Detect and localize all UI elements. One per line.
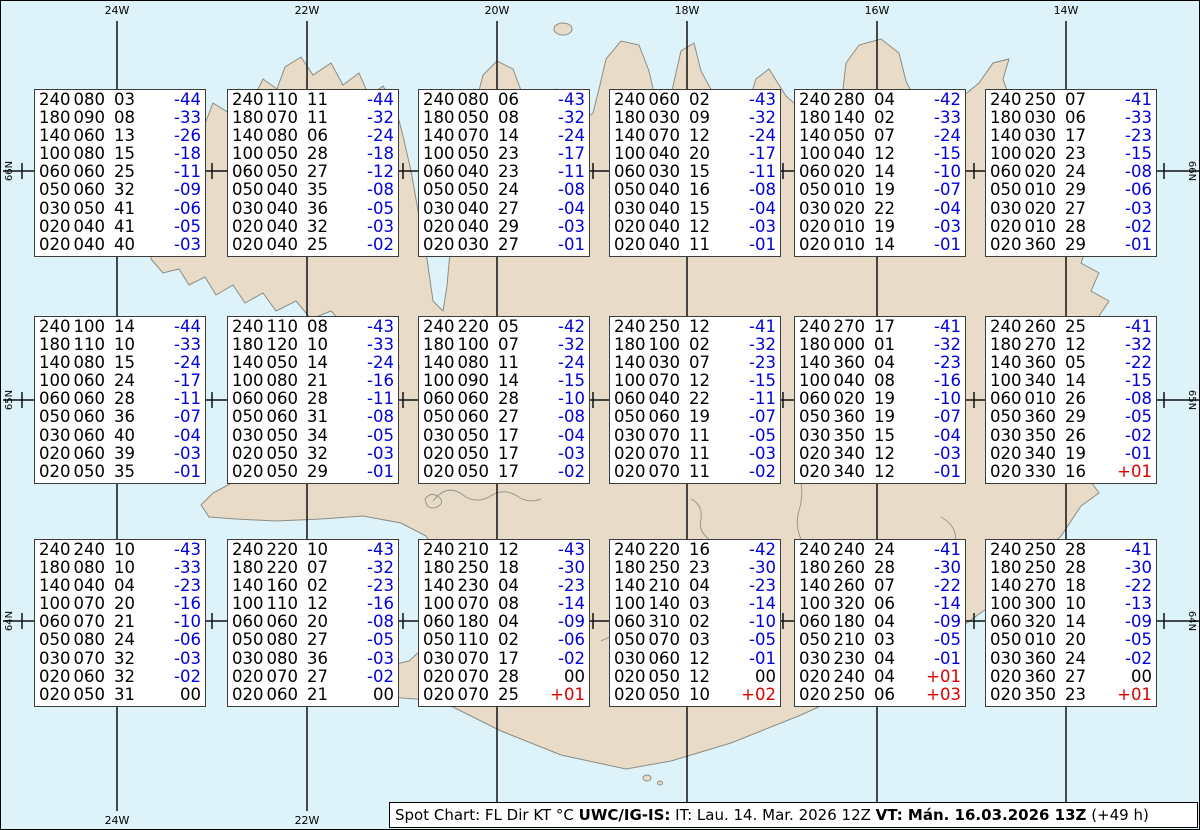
station-level-row: 18009008-33 bbox=[39, 109, 201, 127]
wind-direction: 110 bbox=[74, 336, 106, 354]
wind-speed-kt: 17 bbox=[498, 463, 520, 481]
wind-speed-kt: 25 bbox=[307, 236, 329, 254]
flight-level: 180 bbox=[423, 109, 455, 127]
flight-level: 140 bbox=[232, 577, 264, 595]
station-level-row: 05006036-07 bbox=[39, 408, 201, 426]
temperature-c: 00 bbox=[549, 668, 585, 686]
flight-level: 140 bbox=[799, 354, 831, 372]
flight-level: 060 bbox=[39, 613, 71, 631]
flight-level: 100 bbox=[232, 595, 264, 613]
flight-level: 100 bbox=[614, 595, 646, 613]
wind-speed-kt: 28 bbox=[1065, 218, 1087, 236]
temperature-c: -05 bbox=[165, 218, 201, 236]
flight-level: 140 bbox=[232, 354, 264, 372]
flight-level: 060 bbox=[990, 390, 1022, 408]
wind-direction: 350 bbox=[1025, 686, 1057, 704]
flight-level: 020 bbox=[232, 236, 264, 254]
wind-direction: 220 bbox=[458, 318, 490, 336]
flight-level: 180 bbox=[423, 336, 455, 354]
wind-speed-kt: 04 bbox=[874, 650, 896, 668]
wind-speed-kt: 16 bbox=[689, 181, 711, 199]
flight-level: 060 bbox=[423, 613, 455, 631]
temperature-c: -08 bbox=[358, 408, 394, 426]
station-level-row: 24028004-42 bbox=[799, 91, 961, 109]
wind-speed-kt: 08 bbox=[307, 318, 329, 336]
wind-direction: 100 bbox=[649, 336, 681, 354]
temperature-c: -08 bbox=[358, 613, 394, 631]
station-level-row: 02001014-01 bbox=[799, 236, 961, 254]
temperature-c: -02 bbox=[1116, 218, 1152, 236]
wind-direction: 010 bbox=[1025, 181, 1057, 199]
station-level-row: 02005017-03 bbox=[423, 445, 585, 463]
temperature-c: -09 bbox=[165, 181, 201, 199]
wind-speed-kt: 27 bbox=[1065, 200, 1087, 218]
temperature-c: -05 bbox=[740, 631, 776, 649]
wind-speed-kt: 10 bbox=[114, 336, 136, 354]
temperature-c: -04 bbox=[925, 427, 961, 445]
station-level-row: 24011008-43 bbox=[232, 318, 394, 336]
wind-speed-kt: 29 bbox=[1065, 236, 1087, 254]
temperature-c: -22 bbox=[1116, 577, 1152, 595]
station-level-row: 10005028-18 bbox=[232, 145, 394, 163]
wind-speed-kt: 27 bbox=[307, 163, 329, 181]
wind-direction: 070 bbox=[649, 372, 681, 390]
wind-direction: 050 bbox=[267, 354, 299, 372]
flight-level: 060 bbox=[799, 613, 831, 631]
station-level-row: 24022005-42 bbox=[423, 318, 585, 336]
temperature-c: -42 bbox=[549, 318, 585, 336]
temperature-c: -09 bbox=[925, 613, 961, 631]
flight-level: 050 bbox=[799, 181, 831, 199]
footer-info-bar: Spot Chart: FL Dir KT °C UWC/IG-IS: IT: … bbox=[389, 802, 1198, 828]
temperature-c: -03 bbox=[1116, 200, 1152, 218]
temperature-c: 00 bbox=[358, 686, 394, 704]
station-level-row: 14005014-24 bbox=[232, 354, 394, 372]
wind-speed-kt: 06 bbox=[498, 91, 520, 109]
temperature-c: -03 bbox=[165, 445, 201, 463]
wind-direction: 350 bbox=[1025, 427, 1057, 445]
wind-direction: 010 bbox=[834, 236, 866, 254]
flight-level: 240 bbox=[614, 91, 646, 109]
wind-speed-kt: 03 bbox=[689, 595, 711, 613]
flight-level: 020 bbox=[614, 445, 646, 463]
station-level-row: 0203602700 bbox=[990, 668, 1152, 686]
wind-direction: 050 bbox=[267, 427, 299, 445]
temperature-c: -30 bbox=[740, 559, 776, 577]
station-box-12: 24026025-4118027012-3214036005-221003401… bbox=[985, 316, 1157, 484]
station-level-row: 24011011-44 bbox=[232, 91, 394, 109]
wind-speed-kt: 28 bbox=[307, 390, 329, 408]
temperature-c: 00 bbox=[1116, 668, 1152, 686]
wind-speed-kt: 08 bbox=[498, 595, 520, 613]
station-level-row: 06006028-11 bbox=[232, 390, 394, 408]
temperature-c: -01 bbox=[740, 236, 776, 254]
temperature-c: -15 bbox=[549, 372, 585, 390]
wind-speed-kt: 24 bbox=[1065, 163, 1087, 181]
station-level-row: 24022010-43 bbox=[232, 541, 394, 559]
station-level-row: 10007020-16 bbox=[39, 595, 201, 613]
station-level-row: 02024004+01 bbox=[799, 668, 961, 686]
wind-speed-kt: 05 bbox=[1065, 354, 1087, 372]
flight-level: 020 bbox=[614, 463, 646, 481]
wind-direction: 010 bbox=[834, 218, 866, 236]
flight-level: 180 bbox=[799, 109, 831, 127]
temperature-c: 00 bbox=[740, 668, 776, 686]
longitude-label-top: 18W bbox=[675, 5, 700, 17]
station-level-row: 02004041-05 bbox=[39, 218, 201, 236]
flight-level: 020 bbox=[39, 686, 71, 704]
wind-direction: 030 bbox=[649, 163, 681, 181]
station-level-row: 18005008-32 bbox=[423, 109, 585, 127]
station-level-row: 05006032-09 bbox=[39, 181, 201, 199]
flight-level: 020 bbox=[990, 218, 1022, 236]
station-level-row: 03007011-05 bbox=[614, 427, 776, 445]
wind-speed-kt: 27 bbox=[307, 631, 329, 649]
wind-direction: 060 bbox=[458, 408, 490, 426]
flight-level: 140 bbox=[423, 127, 455, 145]
wind-speed-kt: 12 bbox=[689, 668, 711, 686]
wind-direction: 060 bbox=[74, 390, 106, 408]
temperature-c: -05 bbox=[358, 427, 394, 445]
station-level-row: 24025012-41 bbox=[614, 318, 776, 336]
wind-direction: 250 bbox=[649, 318, 681, 336]
station-level-row: 03006040-04 bbox=[39, 427, 201, 445]
flight-level: 140 bbox=[423, 354, 455, 372]
wind-direction: 070 bbox=[267, 668, 299, 686]
temperature-c: +01 bbox=[549, 686, 585, 704]
station-level-row: 06002024-08 bbox=[990, 163, 1152, 181]
wind-direction: 030 bbox=[649, 354, 681, 372]
wind-speed-kt: 12 bbox=[1065, 336, 1087, 354]
temperature-c: -24 bbox=[740, 127, 776, 145]
wind-direction: 080 bbox=[74, 91, 106, 109]
wind-speed-kt: 07 bbox=[874, 127, 896, 145]
flight-level: 240 bbox=[232, 541, 264, 559]
wind-speed-kt: 07 bbox=[307, 559, 329, 577]
station-box-5: 24028004-4218014002-3314005007-241000401… bbox=[794, 89, 966, 257]
flight-level: 140 bbox=[39, 577, 71, 595]
station-level-row: 03035015-04 bbox=[799, 427, 961, 445]
footer-segment-bold: UWC/IG-IS: bbox=[579, 806, 671, 824]
flight-level: 140 bbox=[39, 354, 71, 372]
temperature-c: -33 bbox=[925, 109, 961, 127]
station-box-8: 24011008-4318012010-3314005014-241000802… bbox=[227, 316, 399, 484]
wind-direction: 250 bbox=[649, 559, 681, 577]
flight-level: 140 bbox=[799, 127, 831, 145]
wind-direction: 070 bbox=[649, 463, 681, 481]
station-level-row: 05006031-08 bbox=[232, 408, 394, 426]
wind-speed-kt: 41 bbox=[114, 200, 136, 218]
wind-speed-kt: 32 bbox=[307, 218, 329, 236]
wind-speed-kt: 20 bbox=[689, 145, 711, 163]
wind-direction: 080 bbox=[74, 145, 106, 163]
temperature-c: -43 bbox=[549, 541, 585, 559]
wind-direction: 140 bbox=[649, 595, 681, 613]
station-level-row: 03023004-01 bbox=[799, 650, 961, 668]
temperature-c: -02 bbox=[1116, 427, 1152, 445]
temperature-c: -22 bbox=[1116, 354, 1152, 372]
wind-speed-kt: 14 bbox=[874, 163, 896, 181]
wind-speed-kt: 08 bbox=[498, 109, 520, 127]
wind-direction: 030 bbox=[1025, 109, 1057, 127]
wind-direction: 070 bbox=[649, 631, 681, 649]
station-level-row: 06007021-10 bbox=[39, 613, 201, 631]
wind-direction: 020 bbox=[1025, 163, 1057, 181]
temperature-c: -11 bbox=[358, 390, 394, 408]
wind-direction: 050 bbox=[74, 463, 106, 481]
wind-speed-kt: 04 bbox=[874, 668, 896, 686]
temperature-c: -41 bbox=[925, 318, 961, 336]
temperature-c: -01 bbox=[1116, 236, 1152, 254]
wind-speed-kt: 23 bbox=[689, 559, 711, 577]
temperature-c: -03 bbox=[358, 218, 394, 236]
temperature-c: -22 bbox=[925, 577, 961, 595]
station-level-row: 05005024-08 bbox=[423, 181, 585, 199]
station-level-row: 02006032-02 bbox=[39, 668, 201, 686]
temperature-c: -44 bbox=[165, 318, 201, 336]
temperature-c: -08 bbox=[549, 181, 585, 199]
wind-speed-kt: 16 bbox=[1065, 463, 1087, 481]
flight-level: 030 bbox=[990, 650, 1022, 668]
wind-speed-kt: 12 bbox=[874, 463, 896, 481]
station-level-row: 06002019-10 bbox=[799, 390, 961, 408]
temperature-c: -32 bbox=[740, 336, 776, 354]
temperature-c: -41 bbox=[925, 541, 961, 559]
flight-level: 240 bbox=[39, 91, 71, 109]
station-level-row: 10011012-16 bbox=[232, 595, 394, 613]
wind-direction: 010 bbox=[1025, 390, 1057, 408]
longitude-label-bottom: 24W bbox=[105, 815, 130, 827]
wind-speed-kt: 03 bbox=[874, 631, 896, 649]
temperature-c: -03 bbox=[925, 445, 961, 463]
temperature-c: -12 bbox=[358, 163, 394, 181]
wind-speed-kt: 04 bbox=[114, 577, 136, 595]
station-level-row: 06002014-10 bbox=[799, 163, 961, 181]
footer-segment: Spot Chart: FL Dir KT °C bbox=[395, 806, 579, 824]
temperature-c: -15 bbox=[925, 145, 961, 163]
flight-level: 180 bbox=[990, 559, 1022, 577]
wind-speed-kt: 17 bbox=[498, 445, 520, 463]
temperature-c: -30 bbox=[549, 559, 585, 577]
flight-level: 240 bbox=[39, 541, 71, 559]
wind-direction: 050 bbox=[458, 427, 490, 445]
flight-level: 060 bbox=[990, 613, 1022, 631]
wind-direction: 040 bbox=[74, 218, 106, 236]
temperature-c: -18 bbox=[358, 145, 394, 163]
flight-level: 240 bbox=[614, 318, 646, 336]
temperature-c: -01 bbox=[549, 236, 585, 254]
station-level-row: 02007011-02 bbox=[614, 463, 776, 481]
wind-speed-kt: 26 bbox=[1065, 390, 1087, 408]
station-level-row: 06018004-09 bbox=[799, 613, 961, 631]
temperature-c: -23 bbox=[358, 577, 394, 595]
station-level-row: 10008021-16 bbox=[232, 372, 394, 390]
wind-speed-kt: 39 bbox=[114, 445, 136, 463]
flight-level: 020 bbox=[423, 218, 455, 236]
temperature-c: -04 bbox=[549, 427, 585, 445]
wind-direction: 080 bbox=[74, 354, 106, 372]
station-box-7: 24010014-4418011010-3314008015-241000602… bbox=[34, 316, 206, 484]
flight-level: 100 bbox=[423, 372, 455, 390]
flight-level: 180 bbox=[39, 109, 71, 127]
station-level-row: 18012010-33 bbox=[232, 336, 394, 354]
latitude-label-left: 66N bbox=[5, 161, 15, 181]
wind-speed-kt: 23 bbox=[1065, 686, 1087, 704]
wind-direction: 040 bbox=[458, 218, 490, 236]
flight-level: 020 bbox=[423, 463, 455, 481]
flight-level: 100 bbox=[614, 145, 646, 163]
flight-level: 030 bbox=[614, 650, 646, 668]
flight-level: 060 bbox=[39, 163, 71, 181]
station-level-row: 03005017-04 bbox=[423, 427, 585, 445]
temperature-c: -02 bbox=[1116, 650, 1152, 668]
wind-speed-kt: 27 bbox=[307, 668, 329, 686]
wind-speed-kt: 12 bbox=[689, 218, 711, 236]
wind-speed-kt: 04 bbox=[498, 577, 520, 595]
temperature-c: -16 bbox=[165, 595, 201, 613]
flight-level: 030 bbox=[990, 427, 1022, 445]
flight-level: 050 bbox=[614, 408, 646, 426]
wind-direction: 140 bbox=[834, 109, 866, 127]
wind-speed-kt: 15 bbox=[689, 163, 711, 181]
wind-speed-kt: 19 bbox=[874, 181, 896, 199]
wind-speed-kt: 22 bbox=[874, 200, 896, 218]
flight-level: 050 bbox=[423, 181, 455, 199]
wind-direction: 110 bbox=[458, 631, 490, 649]
flight-level: 240 bbox=[232, 91, 264, 109]
flight-level: 240 bbox=[990, 541, 1022, 559]
flight-level: 020 bbox=[39, 218, 71, 236]
station-level-row: 14007012-24 bbox=[614, 127, 776, 145]
flight-level: 020 bbox=[232, 463, 264, 481]
flight-level: 140 bbox=[614, 127, 646, 145]
wind-direction: 080 bbox=[74, 559, 106, 577]
wind-direction: 220 bbox=[649, 541, 681, 559]
station-level-row: 03008036-03 bbox=[232, 650, 394, 668]
wind-direction: 050 bbox=[649, 686, 681, 704]
wind-direction: 330 bbox=[1025, 463, 1057, 481]
wind-direction: 020 bbox=[834, 163, 866, 181]
station-level-row: 06005027-12 bbox=[232, 163, 394, 181]
station-level-row: 14004004-23 bbox=[39, 577, 201, 595]
flight-level: 030 bbox=[423, 650, 455, 668]
temperature-c: -10 bbox=[549, 390, 585, 408]
wind-speed-kt: 25 bbox=[498, 686, 520, 704]
temperature-c: -11 bbox=[549, 163, 585, 181]
temperature-c: -42 bbox=[925, 91, 961, 109]
wind-direction: 000 bbox=[834, 336, 866, 354]
station-level-row: 18014002-33 bbox=[799, 109, 961, 127]
flight-level: 180 bbox=[614, 336, 646, 354]
wind-direction: 360 bbox=[1025, 408, 1057, 426]
wind-direction: 090 bbox=[458, 372, 490, 390]
temperature-c: -11 bbox=[165, 163, 201, 181]
wind-speed-kt: 32 bbox=[114, 650, 136, 668]
wind-direction: 090 bbox=[74, 109, 106, 127]
longitude-label-top: 20W bbox=[485, 5, 510, 17]
wind-direction: 210 bbox=[834, 631, 866, 649]
flight-level: 020 bbox=[614, 218, 646, 236]
station-level-row: 06004023-11 bbox=[423, 163, 585, 181]
temperature-c: -24 bbox=[358, 127, 394, 145]
station-level-row: 18011010-33 bbox=[39, 336, 201, 354]
wind-direction: 240 bbox=[74, 541, 106, 559]
wind-speed-kt: 31 bbox=[307, 408, 329, 426]
station-level-row: 24027017-41 bbox=[799, 318, 961, 336]
footer-segment-bold: VT: Mán. 16.03.2026 13Z bbox=[876, 806, 1087, 824]
flight-level: 140 bbox=[232, 127, 264, 145]
station-level-row: 14021004-23 bbox=[614, 577, 776, 595]
temperature-c: -24 bbox=[549, 127, 585, 145]
wind-speed-kt: 10 bbox=[1065, 595, 1087, 613]
wind-direction: 250 bbox=[458, 559, 490, 577]
station-level-row: 10008015-18 bbox=[39, 145, 201, 163]
wind-speed-kt: 35 bbox=[114, 463, 136, 481]
temperature-c: -17 bbox=[165, 372, 201, 390]
flight-level: 100 bbox=[614, 372, 646, 390]
wind-speed-kt: 12 bbox=[498, 541, 520, 559]
temperature-c: -43 bbox=[358, 318, 394, 336]
footer-text: Spot Chart: FL Dir KT °C UWC/IG-IS: IT: … bbox=[395, 806, 1149, 824]
flight-level: 100 bbox=[423, 595, 455, 613]
temperature-c: -07 bbox=[925, 181, 961, 199]
flight-level: 030 bbox=[423, 427, 455, 445]
station-level-row: 02036029-01 bbox=[990, 236, 1152, 254]
wind-direction: 340 bbox=[1025, 372, 1057, 390]
temperature-c: -24 bbox=[925, 127, 961, 145]
temperature-c: -43 bbox=[165, 541, 201, 559]
flight-level: 100 bbox=[799, 372, 831, 390]
temperature-c: -01 bbox=[1116, 445, 1152, 463]
station-level-row: 02003027-01 bbox=[423, 236, 585, 254]
flight-level: 140 bbox=[990, 577, 1022, 595]
flight-level: 020 bbox=[990, 445, 1022, 463]
wind-speed-kt: 35 bbox=[307, 181, 329, 199]
flight-level: 240 bbox=[423, 318, 455, 336]
station-level-row: 24010014-44 bbox=[39, 318, 201, 336]
station-level-row: 05006027-08 bbox=[423, 408, 585, 426]
flight-level: 240 bbox=[799, 318, 831, 336]
wind-direction: 050 bbox=[74, 200, 106, 218]
temperature-c: -16 bbox=[358, 372, 394, 390]
flight-level: 030 bbox=[799, 427, 831, 445]
wind-direction: 080 bbox=[267, 372, 299, 390]
flight-level: 050 bbox=[39, 181, 71, 199]
flight-level: 100 bbox=[990, 372, 1022, 390]
flight-level: 180 bbox=[232, 109, 264, 127]
wind-direction: 040 bbox=[649, 218, 681, 236]
temperature-c: -06 bbox=[165, 200, 201, 218]
temperature-c: -09 bbox=[549, 613, 585, 631]
flight-level: 030 bbox=[799, 200, 831, 218]
wind-speed-kt: 01 bbox=[874, 336, 896, 354]
station-level-row: 10005023-17 bbox=[423, 145, 585, 163]
station-level-row: 14036004-23 bbox=[799, 354, 961, 372]
wind-speed-kt: 28 bbox=[1065, 541, 1087, 559]
flight-level: 180 bbox=[232, 336, 264, 354]
wind-speed-kt: 32 bbox=[114, 181, 136, 199]
wind-direction: 360 bbox=[1025, 650, 1057, 668]
wind-direction: 040 bbox=[834, 145, 866, 163]
flight-level: 060 bbox=[614, 390, 646, 408]
wind-speed-kt: 17 bbox=[1065, 127, 1087, 145]
wind-speed-kt: 11 bbox=[689, 427, 711, 445]
wind-speed-kt: 10 bbox=[307, 336, 329, 354]
wind-speed-kt: 10 bbox=[689, 686, 711, 704]
wind-direction: 020 bbox=[1025, 200, 1057, 218]
temperature-c: -04 bbox=[165, 427, 201, 445]
wind-speed-kt: 29 bbox=[307, 463, 329, 481]
